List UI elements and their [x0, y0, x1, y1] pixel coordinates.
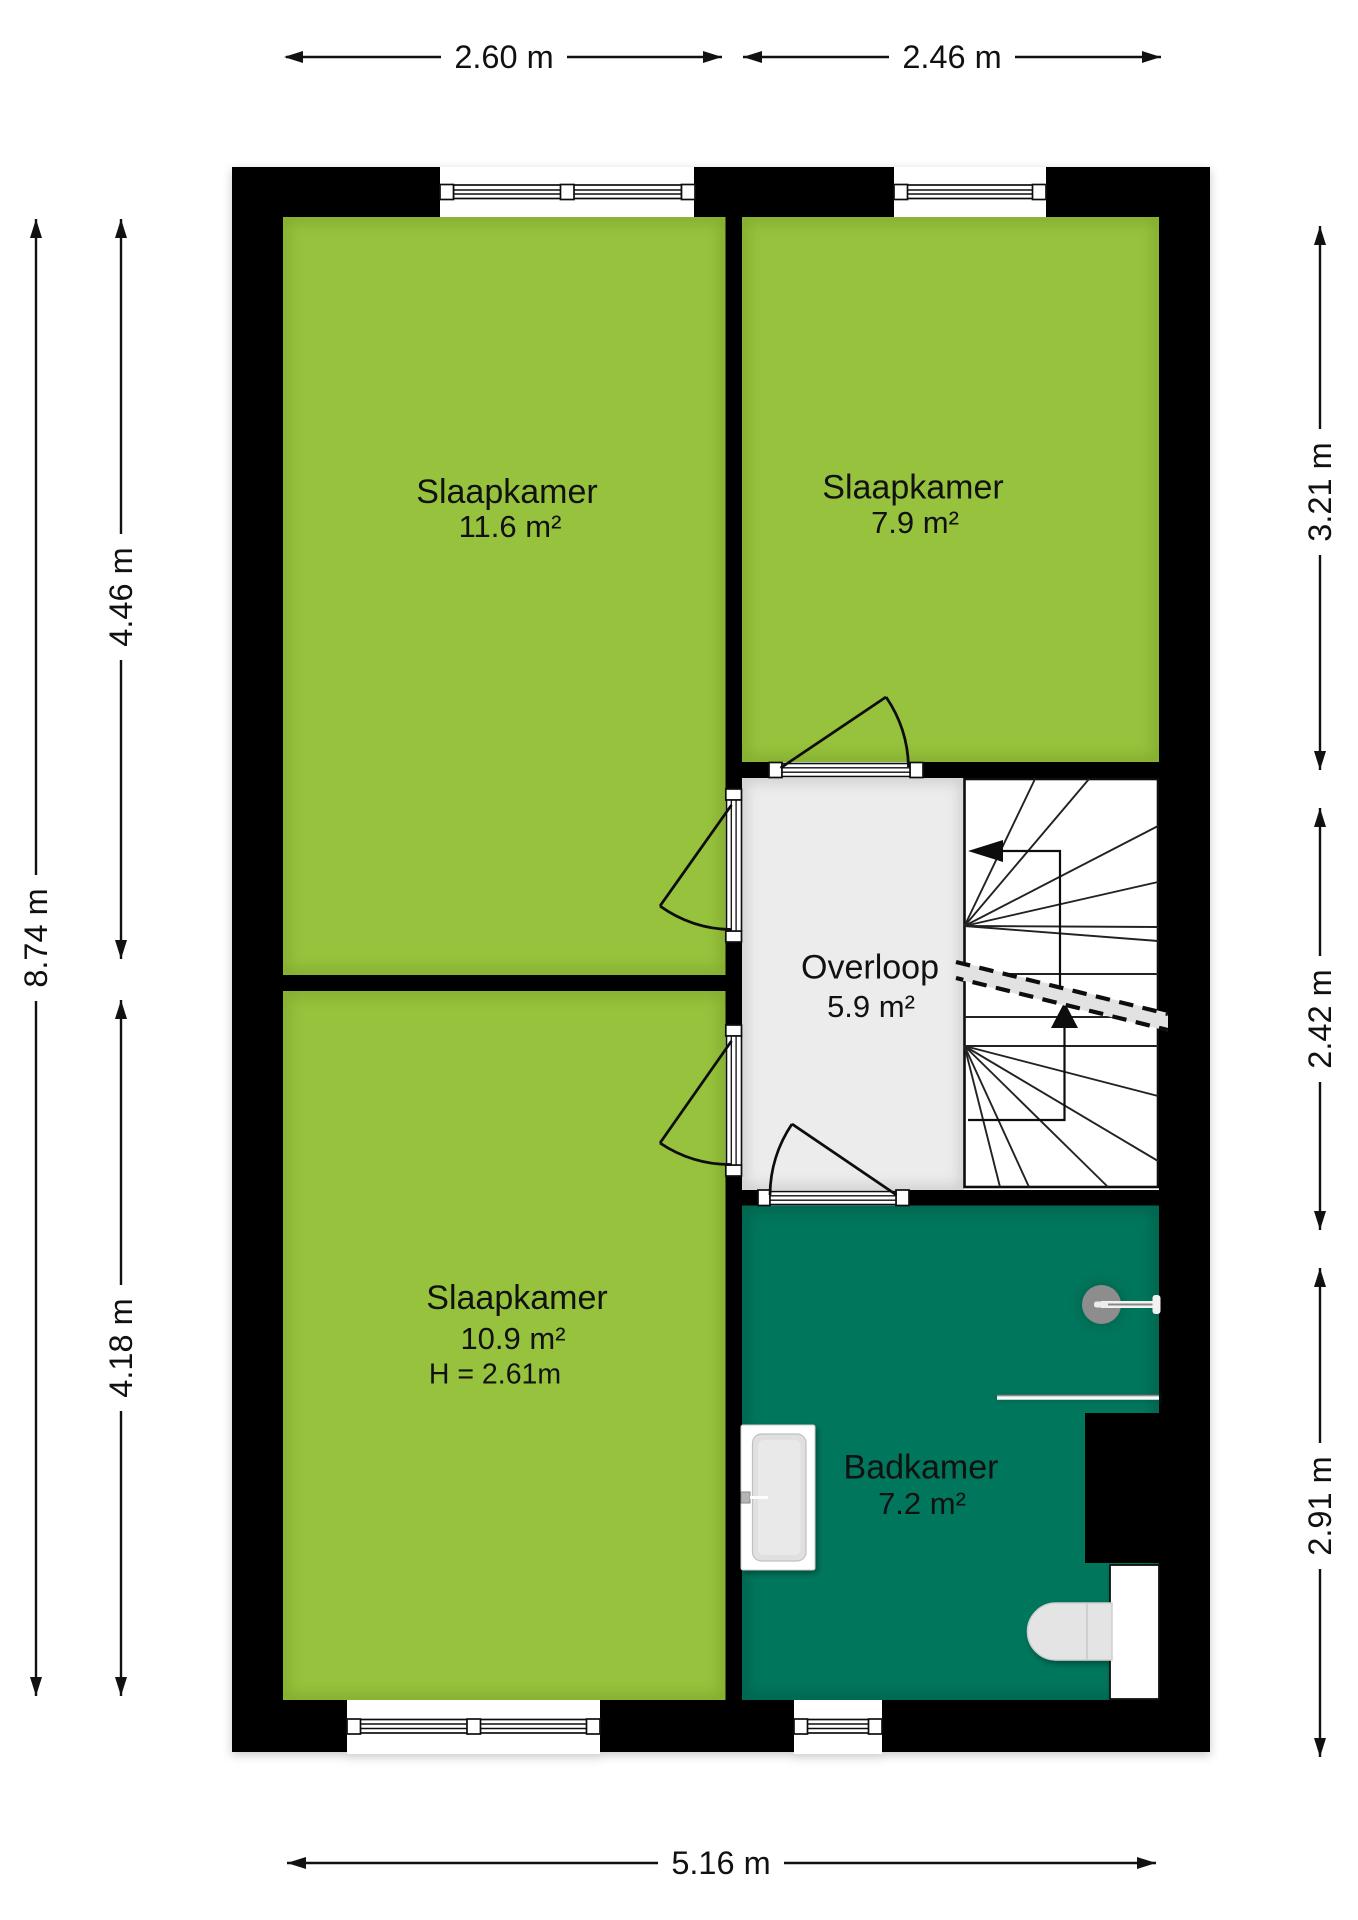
svg-text:Slaapkamer: Slaapkamer [822, 469, 1003, 507]
svg-text:8.74 m: 8.74 m [18, 888, 54, 987]
svg-text:5.9 m²: 5.9 m² [827, 989, 915, 1024]
svg-text:Badkamer: Badkamer [844, 1449, 999, 1487]
svg-text:2.60 m: 2.60 m [454, 39, 553, 75]
svg-text:Slaapkamer: Slaapkamer [426, 1279, 607, 1317]
svg-text:10.9 m²: 10.9 m² [460, 1321, 565, 1356]
svg-text:5.16 m: 5.16 m [671, 1845, 770, 1881]
svg-text:2.46 m: 2.46 m [902, 39, 1001, 75]
svg-text:4.46 m: 4.46 m [103, 547, 139, 646]
svg-text:Overloop: Overloop [801, 949, 939, 987]
svg-text:7.9 m²: 7.9 m² [871, 505, 959, 540]
svg-text:11.6 m²: 11.6 m² [459, 509, 562, 544]
svg-text:2.91 m: 2.91 m [1302, 1456, 1338, 1555]
svg-text:7.2 m²: 7.2 m² [878, 1486, 966, 1521]
svg-text:Slaapkamer: Slaapkamer [416, 473, 597, 511]
svg-text:2.42 m: 2.42 m [1302, 969, 1338, 1068]
svg-text:H = 2.61m: H = 2.61m [429, 1359, 561, 1391]
svg-text:3.21 m: 3.21 m [1302, 442, 1338, 541]
svg-text:4.18 m: 4.18 m [103, 1298, 139, 1397]
